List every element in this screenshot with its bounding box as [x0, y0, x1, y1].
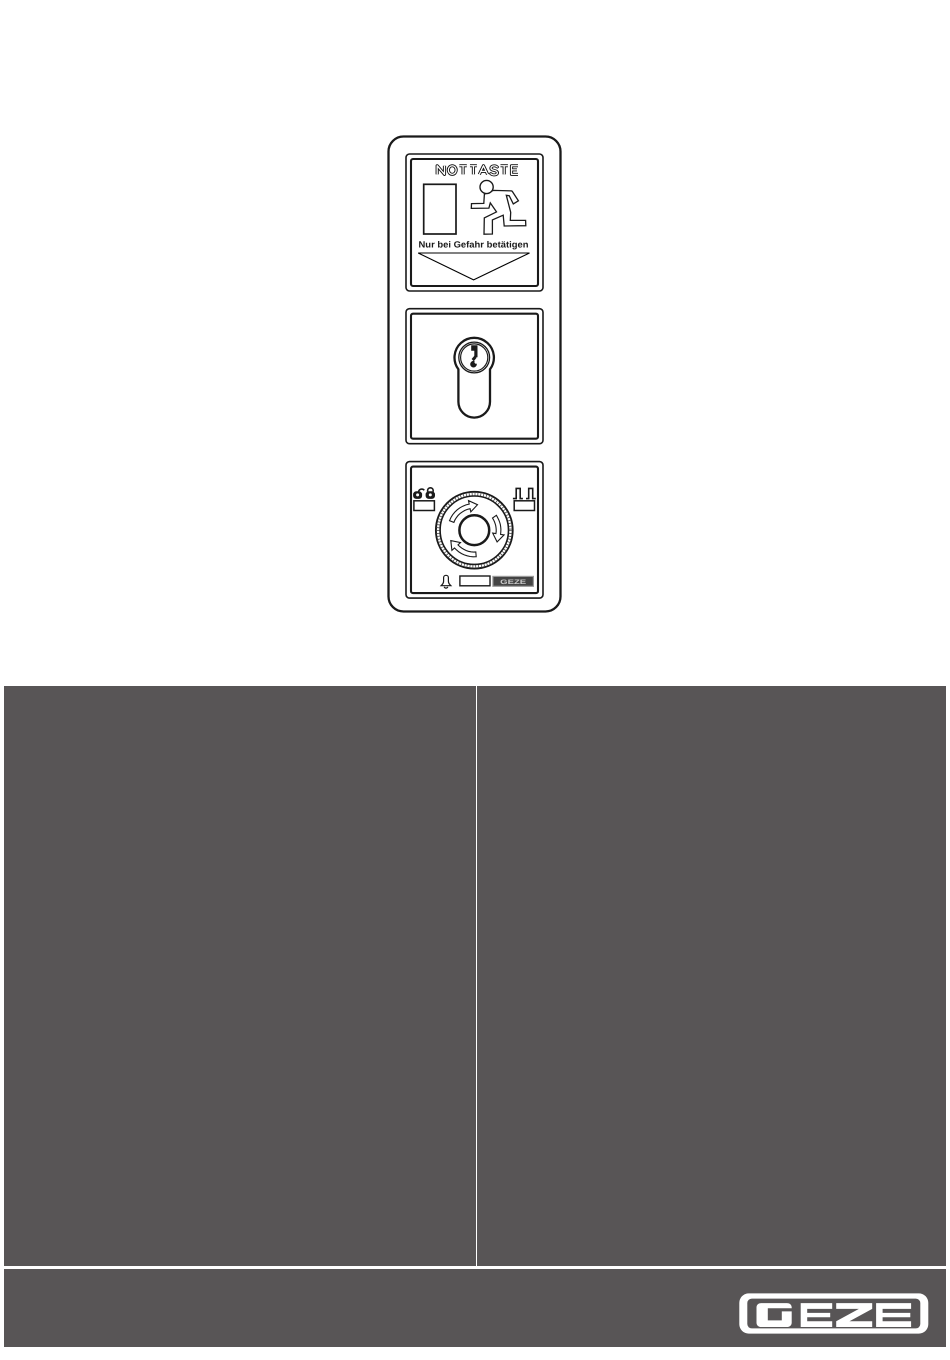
svg-text:Nur bei Gefahr betätigen: Nur bei Gefahr betätigen: [419, 240, 529, 250]
svg-text:GEZE: GEZE: [500, 579, 527, 586]
